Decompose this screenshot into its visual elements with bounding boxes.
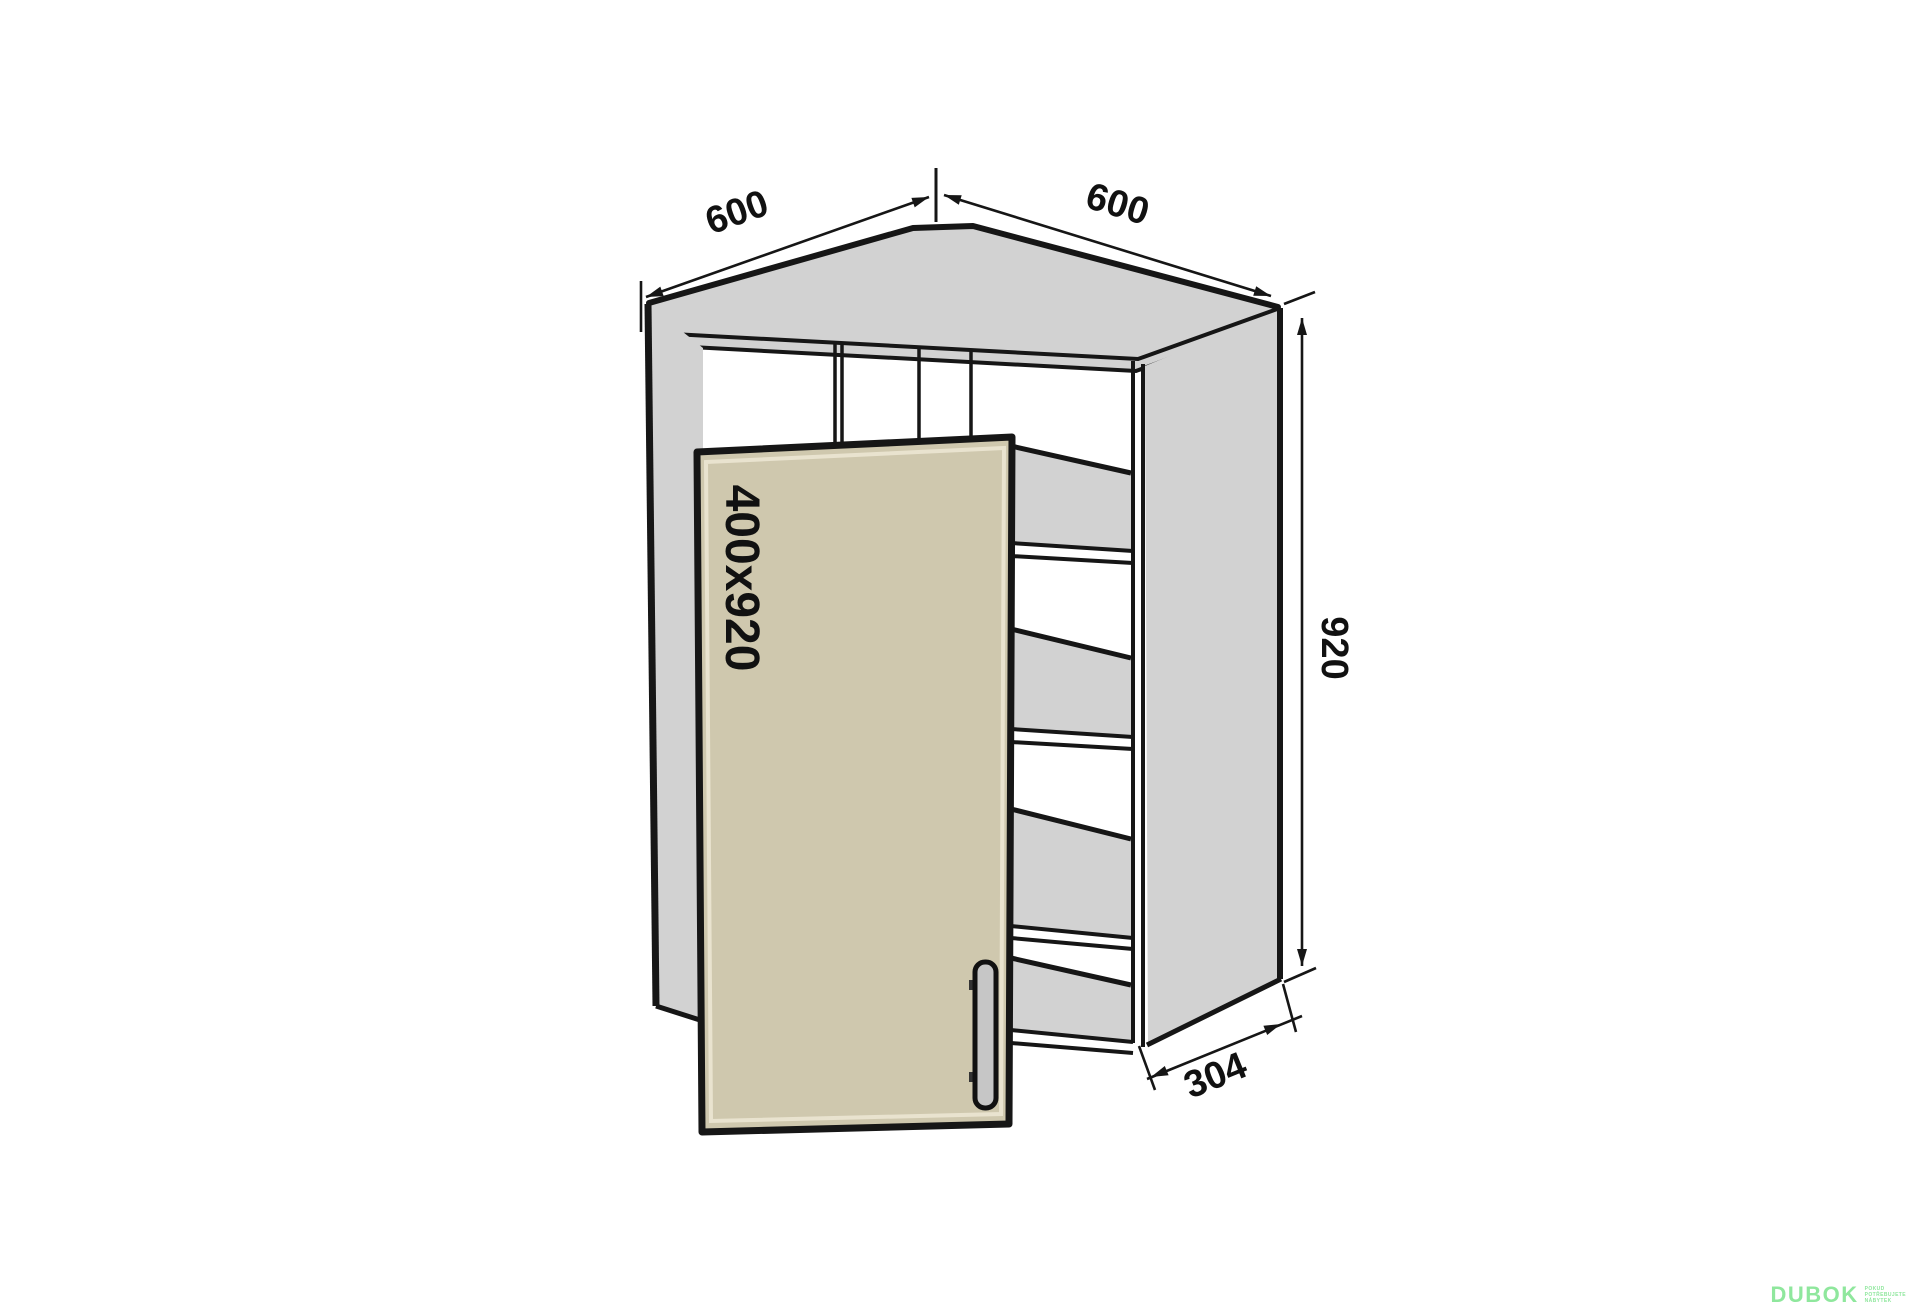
bottom-panel [1011,958,1133,1053]
corner-cabinet-dimension-drawing: 400x920 600 600 920 [0,0,1920,1314]
shelves [1011,361,1143,1053]
shelf-3 [1011,809,1133,949]
dimension-label-height: 920 [1313,616,1355,679]
dimension-height: 920 [1284,292,1355,982]
page: 400x920 600 600 920 [0,0,1920,1314]
dimension-label-width-left: 600 [700,182,774,243]
dimension-label-side-depth: 304 [1178,1045,1253,1108]
left-side-panel [648,304,703,1021]
door-handle [969,962,996,1108]
brand-tagline: POKUD POTŘEBUJETE NÁBYTEK [1865,1287,1906,1306]
brand-watermark: DUBOK POKUD POTŘEBUJETE NÁBYTEK [1770,1284,1906,1306]
brand-logo-text: DUBOK [1770,1284,1858,1306]
shelf-2 [1011,629,1133,749]
brand-tagline-line: NÁBYTEK [1865,1299,1906,1304]
shelf-1 [1011,446,1133,563]
right-side-panel [1145,308,1281,1045]
cabinet-door: 400x920 [697,437,1012,1132]
door-size-label: 400x920 [715,485,768,672]
dimension-label-width-right: 600 [1081,175,1154,234]
